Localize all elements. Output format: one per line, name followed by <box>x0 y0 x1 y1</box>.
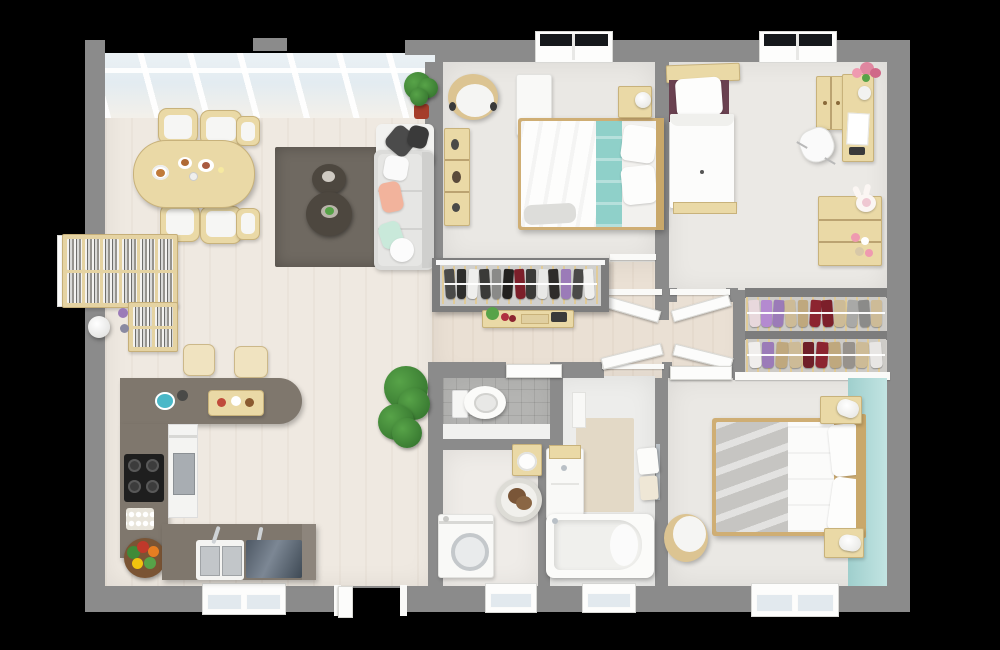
floor-lamp <box>88 316 110 338</box>
bed <box>518 118 664 230</box>
console-item <box>501 313 509 321</box>
window <box>752 584 838 616</box>
hanging-garment <box>762 342 774 368</box>
pet-bed <box>496 478 542 522</box>
dining-table <box>133 140 255 208</box>
toy <box>851 233 860 242</box>
door-lintel <box>610 254 656 260</box>
sofa-backrest <box>422 152 434 268</box>
wardrobe <box>432 258 609 312</box>
nightstand <box>618 86 652 118</box>
skylight-beam <box>105 68 435 73</box>
entry-door-jamb <box>400 585 407 616</box>
counter-item <box>177 390 188 401</box>
roof-post <box>405 40 443 55</box>
cutting-board <box>208 390 264 416</box>
bedroom3-door <box>670 366 732 380</box>
toy <box>861 237 869 245</box>
potted-plant <box>378 364 432 452</box>
hanging-garment <box>748 299 760 327</box>
throw-pillow <box>382 154 410 182</box>
hanging-garment <box>457 269 467 299</box>
glass <box>190 173 197 180</box>
hanging-garment <box>871 300 882 327</box>
desk-item <box>849 147 865 155</box>
hanging-garment <box>846 299 858 327</box>
desk-item <box>118 308 128 318</box>
hanging-garment <box>479 269 491 300</box>
bed <box>712 418 860 536</box>
hanging-garment <box>869 341 883 368</box>
white-sheet <box>788 422 834 532</box>
hanging-garment <box>798 300 809 327</box>
paper <box>846 112 870 145</box>
food <box>202 162 210 169</box>
kettle <box>155 392 175 410</box>
floor-plan <box>0 0 1000 650</box>
hanging-garment <box>843 342 855 368</box>
window <box>760 32 836 62</box>
toy <box>855 247 864 256</box>
bath-radiator <box>572 392 586 428</box>
potted-plant <box>402 70 440 122</box>
hanging-garment <box>829 341 843 368</box>
dish-plant <box>325 207 334 215</box>
closet-rack-upper <box>746 297 886 331</box>
tub-chair <box>448 74 498 120</box>
plant-pot <box>414 104 429 119</box>
console-board <box>521 314 549 324</box>
bookshelf <box>62 234 178 308</box>
console-plant <box>486 307 499 320</box>
tiled-panel <box>576 418 634 512</box>
bathtub <box>546 514 654 578</box>
hanging-garment <box>514 269 526 300</box>
hanging-garment <box>526 269 536 299</box>
hanging-garment <box>537 269 549 300</box>
hanging-garment <box>561 269 571 299</box>
wall-wc-bottom <box>428 438 563 450</box>
gray-blanket <box>716 422 792 532</box>
nightstand <box>820 396 862 424</box>
dog <box>516 496 532 510</box>
pillow <box>620 164 658 205</box>
sink-cabinet <box>246 540 302 578</box>
sofa <box>374 124 436 270</box>
wall-hall-bath <box>558 362 604 378</box>
nightstand <box>824 528 864 558</box>
oven-column <box>168 424 198 518</box>
egg-tray <box>126 508 154 530</box>
toilet <box>452 386 506 420</box>
window <box>203 584 285 614</box>
hanging-garment <box>834 300 845 327</box>
skylight-roof <box>105 40 435 118</box>
hanging-garment <box>788 341 802 368</box>
kitchen-sink <box>196 540 244 580</box>
console-remote <box>551 312 567 322</box>
bar-stool <box>234 346 268 378</box>
bed-foot <box>673 202 737 214</box>
hanging-garment <box>815 341 829 368</box>
wall-shelf <box>444 128 470 226</box>
washing-machine <box>438 514 494 578</box>
towel <box>637 447 660 475</box>
table-lamp <box>835 397 861 420</box>
window <box>486 584 536 612</box>
dining-chair <box>158 108 198 144</box>
vegetable-basket <box>124 538 166 578</box>
console-item <box>509 315 516 322</box>
entry-door <box>338 586 353 618</box>
hanging-garment <box>803 342 815 368</box>
dining-chair <box>236 208 260 240</box>
outer-wall-right <box>887 40 910 612</box>
hallway-console <box>482 310 574 328</box>
oven-window <box>173 453 195 495</box>
bookshelf-lower <box>128 302 178 352</box>
pillow <box>620 124 659 164</box>
foot-blanket <box>524 203 577 226</box>
table-lamp <box>838 533 862 553</box>
counter-end-panel <box>302 524 316 580</box>
headboard <box>856 414 866 538</box>
door-lintel <box>600 289 662 295</box>
desk-chair <box>796 124 836 166</box>
throw-pillow <box>390 238 414 262</box>
flower-vase <box>846 60 882 100</box>
bar-stool <box>183 344 215 376</box>
towel <box>639 475 659 500</box>
wall-sink <box>512 444 542 476</box>
hanging-garment <box>775 341 789 368</box>
duvet <box>670 114 734 208</box>
pillow <box>675 76 724 117</box>
desk-item <box>120 324 129 333</box>
dining-chair <box>236 116 260 146</box>
hanging-garment <box>761 300 772 327</box>
cooktop <box>124 454 164 502</box>
toy <box>865 249 873 257</box>
hanging-garment <box>548 269 560 300</box>
headboard <box>656 118 664 230</box>
hanging-garment <box>572 269 584 300</box>
closet-rack-lower <box>746 339 886 372</box>
window <box>536 32 612 62</box>
window <box>583 584 635 612</box>
door-lintel <box>670 289 730 295</box>
tub-chair <box>664 514 708 562</box>
hanging-garment <box>855 341 869 368</box>
wardrobe-rack <box>442 266 599 304</box>
plush-bunny <box>852 186 882 214</box>
bed-single <box>668 64 738 214</box>
hanging-garment <box>821 299 833 327</box>
hanging-garment <box>444 269 456 300</box>
hanging-garment <box>502 269 514 300</box>
hanging-garment <box>858 299 870 327</box>
hanging-garment <box>492 269 502 299</box>
food <box>156 169 165 177</box>
wc-door <box>506 364 562 378</box>
hanging-garment <box>772 299 784 327</box>
food <box>181 159 189 166</box>
hanging-garment <box>467 269 479 300</box>
roof-post <box>253 38 287 51</box>
hanging-garment <box>809 299 821 327</box>
hanging-garment <box>748 341 762 368</box>
wc-ledge <box>443 424 550 439</box>
hanging-garment <box>785 299 797 327</box>
side-table-plate <box>322 171 335 182</box>
vanity <box>546 448 584 520</box>
table-lamp <box>635 92 651 108</box>
hanging-garment <box>583 269 595 300</box>
glass <box>218 167 224 173</box>
